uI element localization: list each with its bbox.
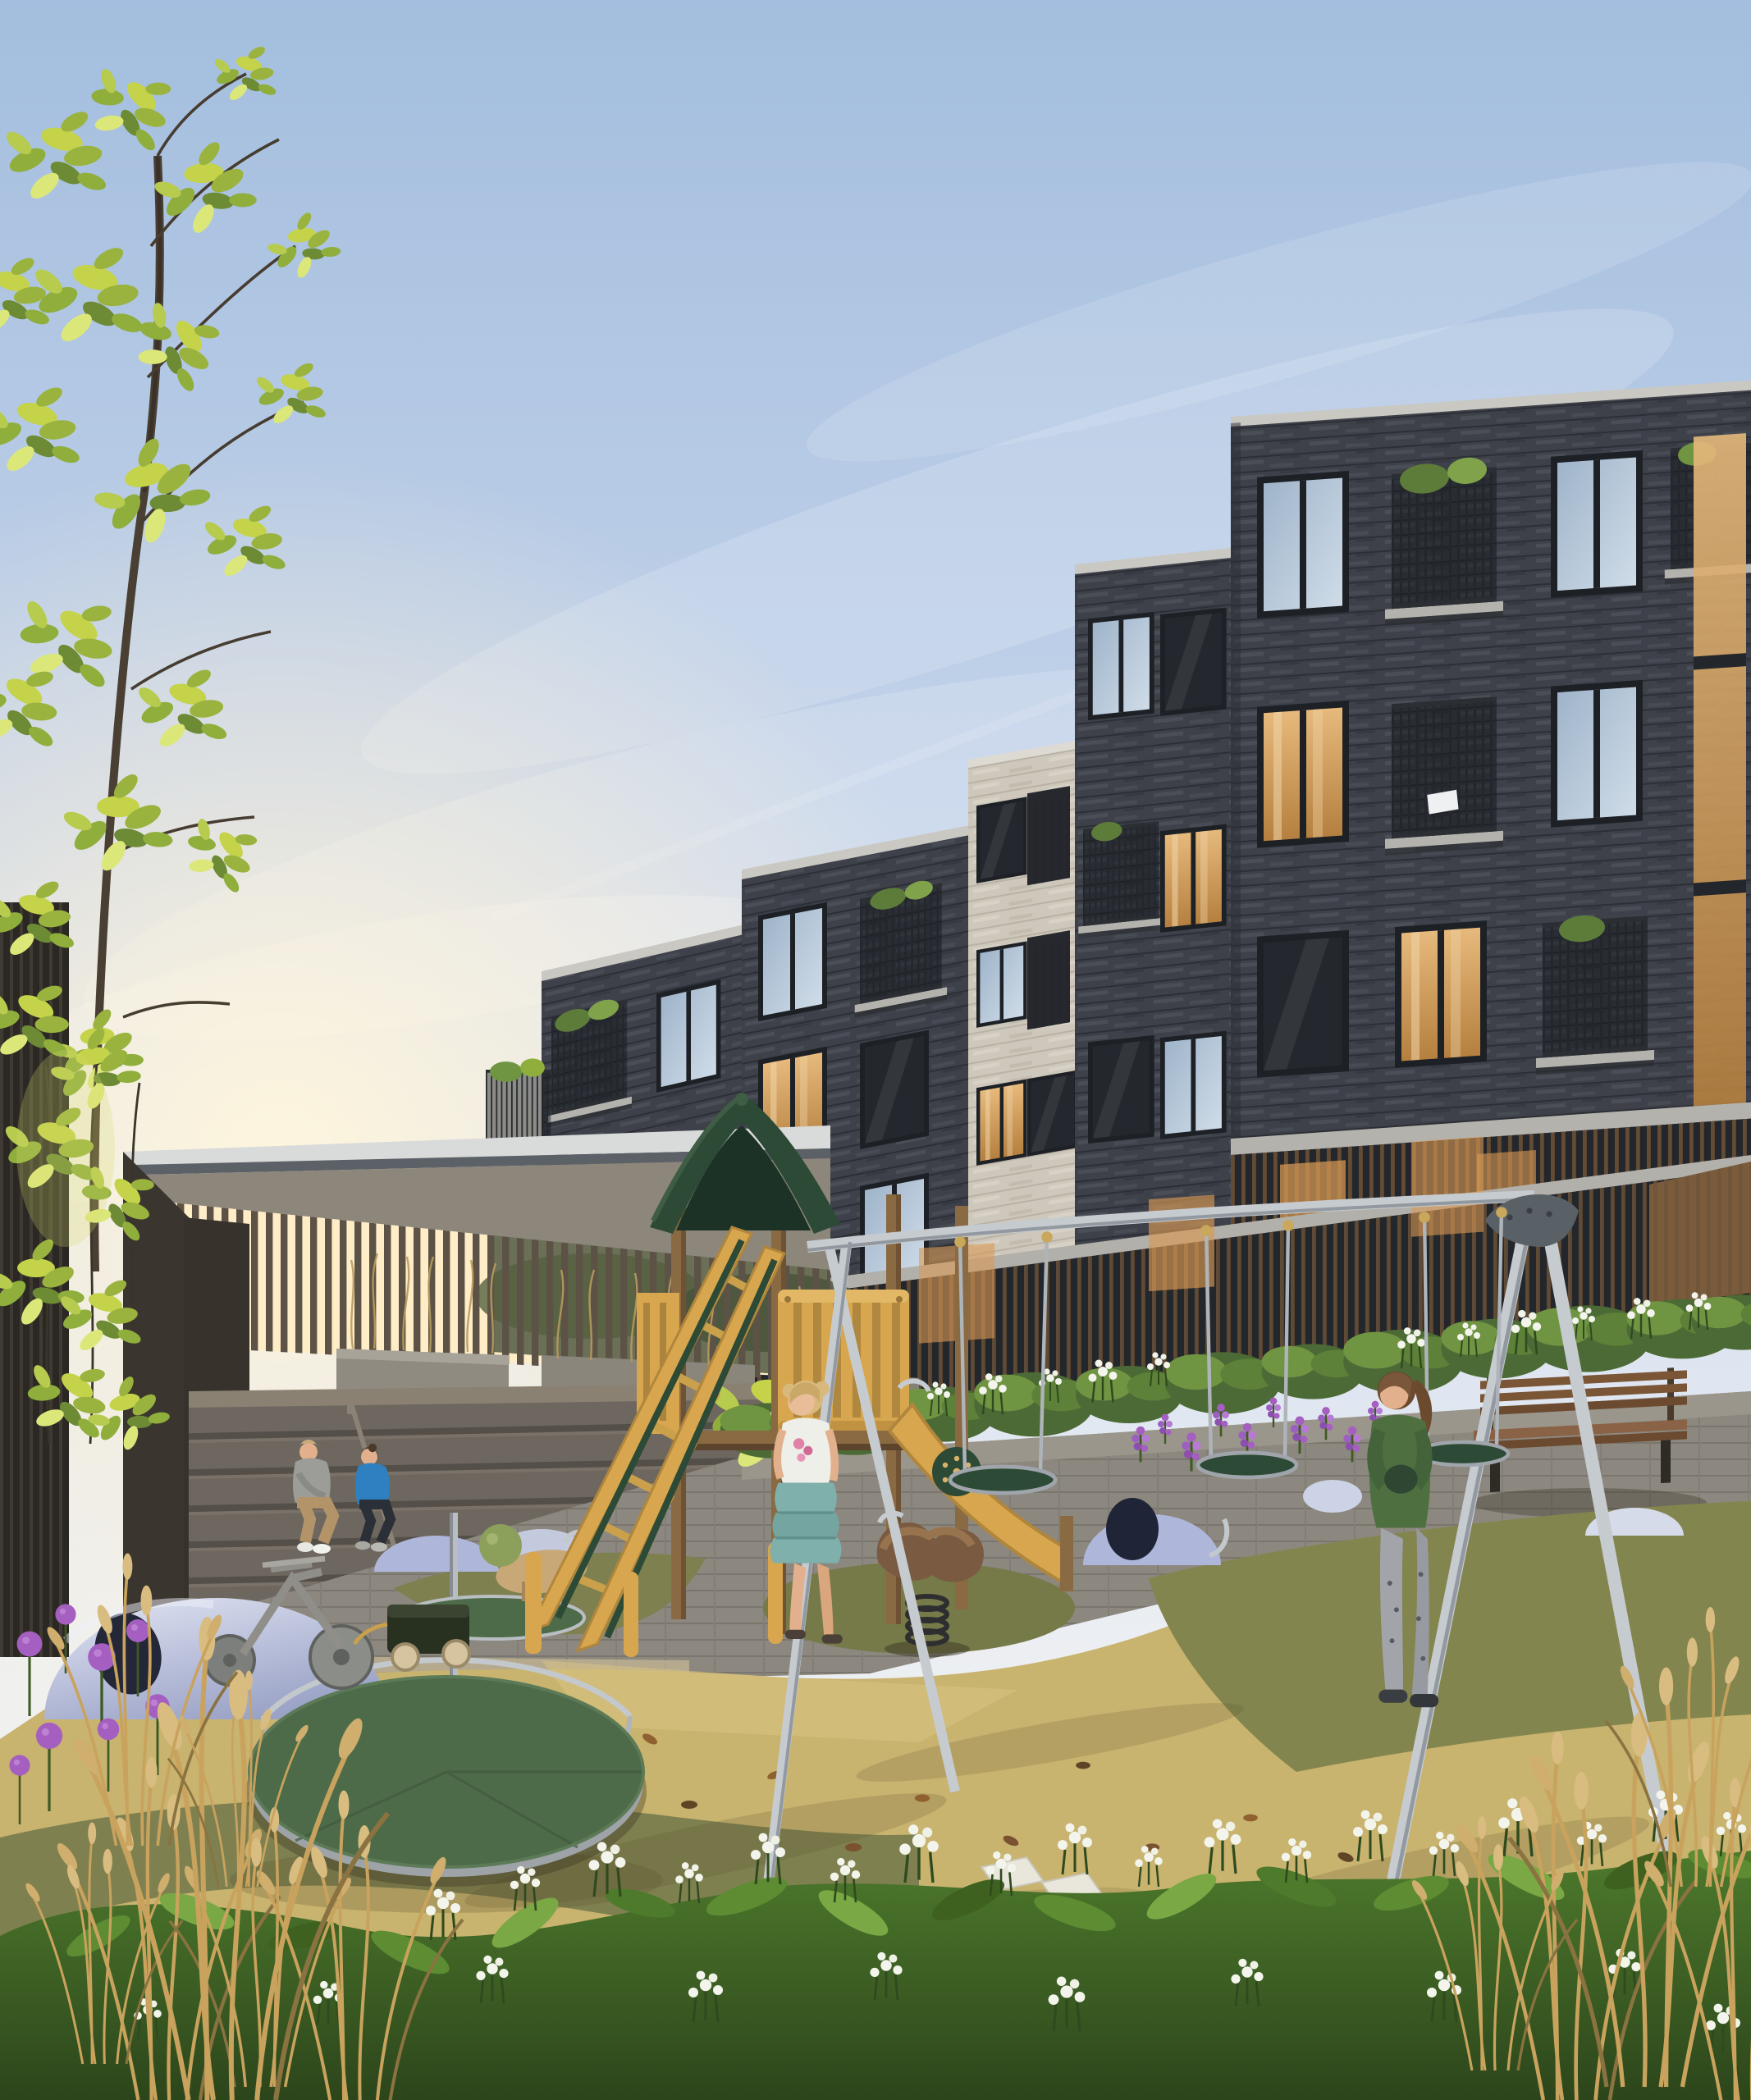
recessed-balcony xyxy=(1027,786,1070,885)
swing-seat xyxy=(1198,1453,1296,1477)
architectural-rendering: Residential courtyard playground - archi… xyxy=(0,0,1751,2100)
play-dome-tiny xyxy=(1303,1480,1362,1513)
swing-seat xyxy=(950,1467,1055,1493)
courtyard-scene: Residential courtyard playground - archi… xyxy=(0,0,1751,2100)
